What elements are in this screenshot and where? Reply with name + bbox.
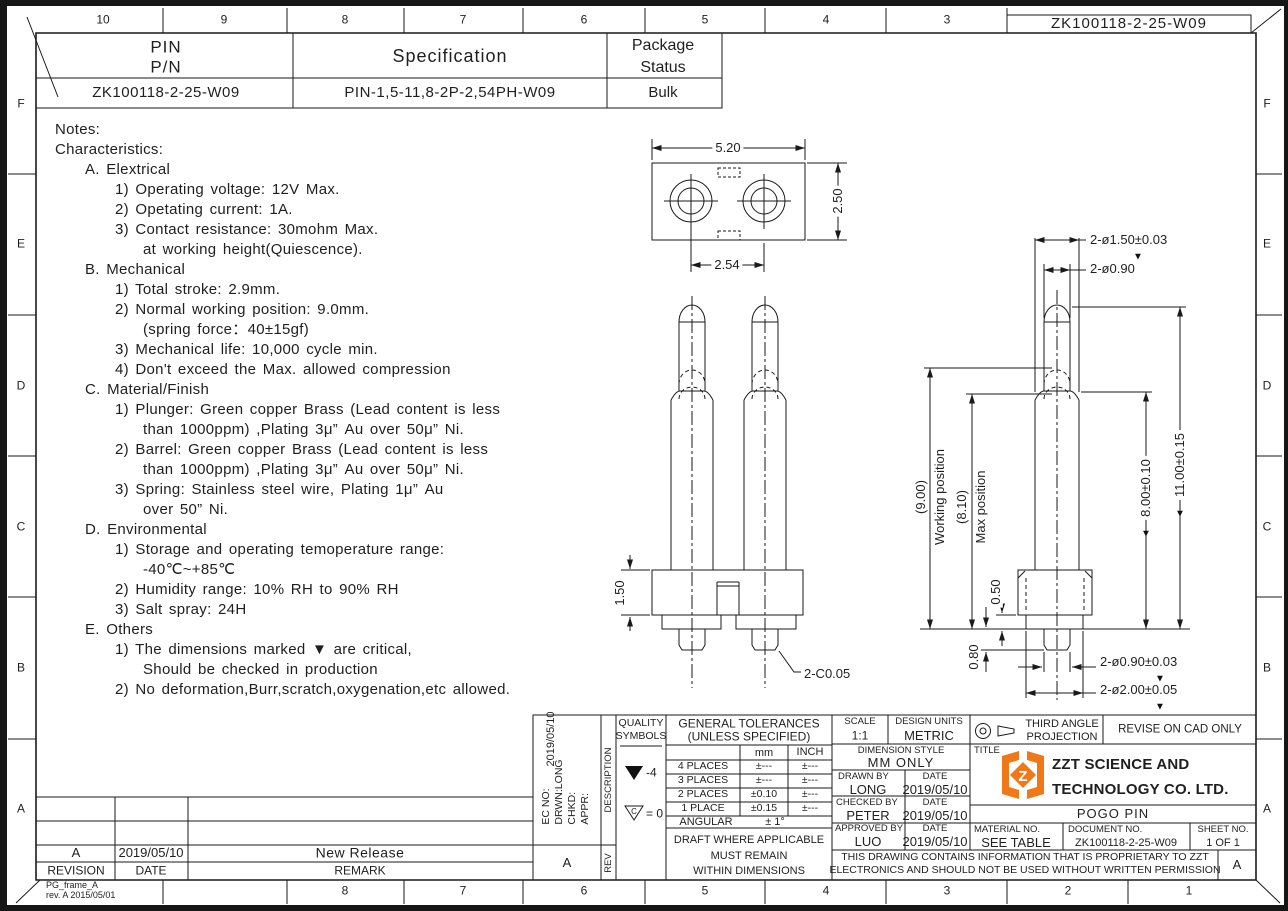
zone-col-top: 10 xyxy=(96,13,109,26)
ec-no-label: EC NO: xyxy=(540,759,553,824)
note-line: 2) Opetating current: 1A. xyxy=(55,200,635,220)
note-line: 1) Plunger: Green copper Brass (Lead con… xyxy=(55,400,635,420)
revision-table-lines xyxy=(36,715,533,880)
package-status-value: Bulk xyxy=(648,85,677,102)
note-line: than 1000ppm) ,Plating 3μ” Au over 50μ” … xyxy=(55,420,635,440)
zone-row-left: A xyxy=(17,802,25,815)
zone-col-bottom: 8 xyxy=(342,884,349,897)
svg-text:Z: Z xyxy=(1018,768,1027,785)
header-spec-label: Specification xyxy=(392,47,507,67)
units-value: METRIC xyxy=(904,729,954,743)
note-line: 2) Barrel: Green copper Brass (Lead cont… xyxy=(55,440,635,460)
product-title: POGO PIN xyxy=(1077,807,1149,821)
zzt-logo: Z xyxy=(1000,751,1046,799)
tol-row-inch: ±--- xyxy=(802,789,818,801)
draft-note-1: DRAFT WHERE APPLICABLE xyxy=(674,834,824,846)
engineering-drawing-sheet: { "colors": {"line": "#1a1a1a", "logo_or… xyxy=(0,0,1288,911)
sheet-value: 1 OF 1 xyxy=(1206,837,1240,849)
tol-row-mm: ±0.10 xyxy=(751,789,777,801)
zone-row-left: F xyxy=(17,97,24,110)
date-label: DATE xyxy=(923,798,948,808)
proprietary-line-1: THIS DRAWING CONTAINS INFORMATION THAT I… xyxy=(841,852,1209,864)
document-label: DOCUMENT NO. xyxy=(1068,825,1142,835)
note-line: 3) Contact resistance: 30mohm Max. xyxy=(55,220,635,240)
tol-row-label: 2 PLACES xyxy=(678,789,728,801)
dim-side-tip-dia: 2-ø0.90 xyxy=(1090,262,1135,276)
dim-top-pitch: 2.54 xyxy=(711,258,742,272)
zone-col-top: 9 xyxy=(221,13,228,26)
company-name-1: ZZT SCIENCE AND xyxy=(1052,757,1189,774)
zone-col-top: 4 xyxy=(823,13,830,26)
dim-front-base: 1.50 xyxy=(613,577,627,608)
drawn-by-value: LONG xyxy=(850,783,887,797)
note-line: B. Mechanical xyxy=(55,260,635,280)
note-line: 4) Don't exceed the Max. allowed compres… xyxy=(55,360,635,380)
note-line: over 50” Ni. xyxy=(55,500,635,520)
proprietary-line-2: ELECTRONICS AND SHOULD NOT BE USED WITHO… xyxy=(829,865,1220,877)
tol-row-label: 3 PLACES xyxy=(678,775,728,787)
material-label: MATERIAL NO. xyxy=(974,825,1040,835)
page-edge-top xyxy=(0,0,1288,6)
tol-row-mm: ±--- xyxy=(756,761,772,773)
note-line: E. Others xyxy=(55,620,635,640)
tol-col-inch: INCH xyxy=(797,746,824,758)
header-package-label: Package xyxy=(632,37,694,55)
note-line: A. Elextrical xyxy=(55,160,635,180)
note-line: than 1000ppm) ,Plating 3μ” Au over 50μ” … xyxy=(55,460,635,480)
zone-row-left: C xyxy=(17,520,26,533)
note-line: Characteristics: xyxy=(55,140,635,160)
tol-row-inch: ±--- xyxy=(802,803,818,815)
filled-triangle-icon xyxy=(624,765,644,781)
projection-label-1: THIRD ANGLE xyxy=(1025,718,1098,730)
tol-row-inch: ±--- xyxy=(802,761,818,773)
header-pin-label: PIN xyxy=(150,39,181,58)
critical-mark-icon: ▼ xyxy=(1175,509,1185,520)
page-edge-left xyxy=(0,0,7,911)
critical-mark-icon: ▼ xyxy=(1155,702,1165,713)
zone-row-right: B xyxy=(1263,661,1271,674)
zone-row-left: D xyxy=(17,379,26,392)
dim-side-080: 0.80 xyxy=(967,641,981,672)
page-edge-right xyxy=(1284,0,1288,911)
checked-by-line: CHKD: xyxy=(566,759,579,824)
document-value: ZK100118-2-25-W09 xyxy=(1075,837,1177,849)
zone-col-bottom: 3 xyxy=(944,884,951,897)
ec-approval-block: EC NO: DRWN:LONG CHKD: APPR: xyxy=(540,759,592,824)
zone-col-top: 8 xyxy=(342,13,349,26)
front-view xyxy=(621,296,803,688)
note-line: -40℃~+85℃ xyxy=(55,560,635,580)
material-value: SEE TABLE xyxy=(981,836,1051,850)
dim-side-base-dia: 2-ø2.00±0.05 xyxy=(1100,683,1177,697)
note-line: Should be checked in production xyxy=(55,660,635,680)
note-line: 2) Normal working position: 9.0mm. xyxy=(55,300,635,320)
tol-row-mm: ±0.15 xyxy=(751,803,777,815)
remark-header: REMARK xyxy=(334,864,385,877)
svg-text:C: C xyxy=(631,807,637,816)
dim-max-label: Max position xyxy=(974,471,988,544)
company-name-2: TECHNOLOGY CO. LTD. xyxy=(1052,782,1229,799)
zone-col-top: 6 xyxy=(581,13,588,26)
quality-label-2: SYMBOLS xyxy=(616,731,667,743)
quality-label-1: QUALITY xyxy=(619,718,664,730)
zone-row-right: C xyxy=(1263,520,1272,533)
note-line: (spring force：40±15gf) xyxy=(55,320,635,340)
dim-side-plunger-dia: 2-ø1.50±0.03 xyxy=(1090,233,1167,247)
header-pn-label: P/N xyxy=(150,59,181,78)
zone-col-bottom: 1 xyxy=(1186,884,1193,897)
dim-top-width: 5.20 xyxy=(712,141,743,155)
dim-working-value: (9.00) xyxy=(914,480,928,514)
note-line: C. Material/Finish xyxy=(55,380,635,400)
drawn-by-line: DRWN:LONG xyxy=(553,759,566,824)
dimension-style-value: MM ONLY xyxy=(868,756,935,770)
dim-working-label: Working position xyxy=(933,449,947,545)
note-line: 1) Total stroke: 2.9mm. xyxy=(55,280,635,300)
note-line: 2) No deformation,Burr,scratch,oxygenati… xyxy=(55,680,635,700)
angular-value: ± 1° xyxy=(765,816,785,828)
note-line: at working height(Quiescence). xyxy=(55,240,635,260)
zone-col-bottom: 6 xyxy=(581,884,588,897)
note-line: 3) Spring: Stainless steel wire, Plating… xyxy=(55,480,635,500)
approved-by-line: APPR: xyxy=(579,759,592,824)
sheet-rev-letter: A xyxy=(1233,858,1242,872)
revision-date: 2019/05/10 xyxy=(118,846,183,860)
zone-col-top: 3 xyxy=(944,13,951,26)
zone-row-right: D xyxy=(1263,379,1272,392)
tol-row-label: 4 PLACES xyxy=(678,761,728,773)
note-line: Notes: xyxy=(55,120,635,140)
revision-value: A xyxy=(72,846,81,860)
revision-header: REVISION xyxy=(47,864,104,877)
doc-number-box: ZK100118-2-25-W09 xyxy=(1051,16,1207,33)
specification-value: PIN-1,5-11,8-2P-2,54PH-W09 xyxy=(344,85,555,102)
dim-side-pin-dia: 2-ø0.90±0.03 xyxy=(1100,655,1177,669)
top-view xyxy=(652,139,847,272)
quality-filled-value: -4 xyxy=(646,766,657,779)
checked-date: 2019/05/10 xyxy=(902,809,967,823)
description-label: DESCRIPTION xyxy=(604,748,614,813)
zone-row-right: E xyxy=(1263,237,1271,250)
page-edge-bottom xyxy=(0,905,1288,911)
rev-label: REV xyxy=(604,853,614,873)
draft-note-3: WITHIN DIMENSIONS xyxy=(693,865,805,877)
zone-col-top: 5 xyxy=(702,13,709,26)
projection-label-2: PROJECTION xyxy=(1027,731,1098,743)
revise-note: REVISE ON CAD ONLY xyxy=(1118,724,1242,737)
tol-col-mm: mm xyxy=(755,747,773,759)
scale-value: 1:1 xyxy=(852,729,869,742)
dim-side-800: 8.00±0.10 xyxy=(1139,456,1153,520)
frame-revision: rev. A 2015/05/01 xyxy=(46,891,115,901)
scale-label: SCALE xyxy=(844,717,875,727)
drawn-by-label: DRAWN BY xyxy=(838,772,889,782)
angular-label: ANGULAR xyxy=(679,816,732,828)
note-line: 3) Mechanical life: 10,000 cycle min. xyxy=(55,340,635,360)
tol-row-label: 1 PLACE xyxy=(681,803,724,815)
note-line: D. Environmental xyxy=(55,520,635,540)
zone-col-bottom: 2 xyxy=(1065,884,1072,897)
dim-top-height: 2.50 xyxy=(831,185,845,216)
dim-side-1100: 11.00±0.15 xyxy=(1173,430,1187,500)
dim-max-value: (8.10) xyxy=(955,490,969,524)
title-label: TITLE xyxy=(974,746,1000,756)
zone-col-bottom: 7 xyxy=(460,884,467,897)
date-header: DATE xyxy=(135,864,166,877)
ec-date: 2019/05/10 xyxy=(545,711,557,766)
note-line: 1) Operating voltage: 12V Max. xyxy=(55,180,635,200)
approved-by-value: LUO xyxy=(855,835,882,849)
note-line: 2) Humidity range: 10% RH to 90% RH xyxy=(55,580,635,600)
dim-front-chamfer: 2-C0.05 xyxy=(804,667,850,681)
tolerance-title-2: (UNLESS SPECIFIED) xyxy=(688,730,811,743)
sheet-label: SHEET NO. xyxy=(1197,825,1248,835)
ec-rev-value: A xyxy=(563,856,572,870)
note-line: 3) Salt spray: 24H xyxy=(55,600,635,620)
open-triangle-c-icon: C xyxy=(624,805,644,821)
checked-by-value: PETER xyxy=(846,809,889,823)
units-label: DESIGN UNITS xyxy=(895,717,963,727)
drawn-date: 2019/05/10 xyxy=(902,783,967,797)
draft-note-2: MUST REMAIN xyxy=(711,850,788,862)
zone-col-top: 7 xyxy=(460,13,467,26)
quality-open-value: = 0 xyxy=(646,807,663,820)
zone-row-left: E xyxy=(17,237,25,250)
revision-remark: New Release xyxy=(316,845,405,860)
tol-row-inch: ±--- xyxy=(802,775,818,787)
date-label: DATE xyxy=(923,824,948,834)
dim-side-050: 0.50 xyxy=(989,576,1003,607)
tol-row-mm: ±--- xyxy=(756,775,772,787)
third-angle-projection-icon xyxy=(972,720,1018,742)
zone-row-right: A xyxy=(1263,802,1271,815)
zone-row-right: F xyxy=(1263,97,1270,110)
notes-section: Notes: Characteristics: A. Elextrical 1)… xyxy=(55,120,635,700)
checked-by-label: CHECKED BY xyxy=(836,798,898,808)
critical-mark-icon: ▼ xyxy=(1141,529,1151,540)
zone-row-left: B xyxy=(17,661,25,674)
pin-part-number: ZK100118-2-25-W09 xyxy=(92,85,239,102)
note-line: 1) The dimensions marked ▼ are critical, xyxy=(55,640,635,660)
zone-col-bottom: 5 xyxy=(702,884,709,897)
header-status-label: Status xyxy=(640,59,685,77)
zone-col-bottom: 4 xyxy=(823,884,830,897)
note-line: 1) Storage and operating temoperature ra… xyxy=(55,540,635,560)
approved-date: 2019/05/10 xyxy=(902,835,967,849)
approved-by-label: APPROVED BY xyxy=(835,824,903,834)
date-label: DATE xyxy=(923,772,948,782)
